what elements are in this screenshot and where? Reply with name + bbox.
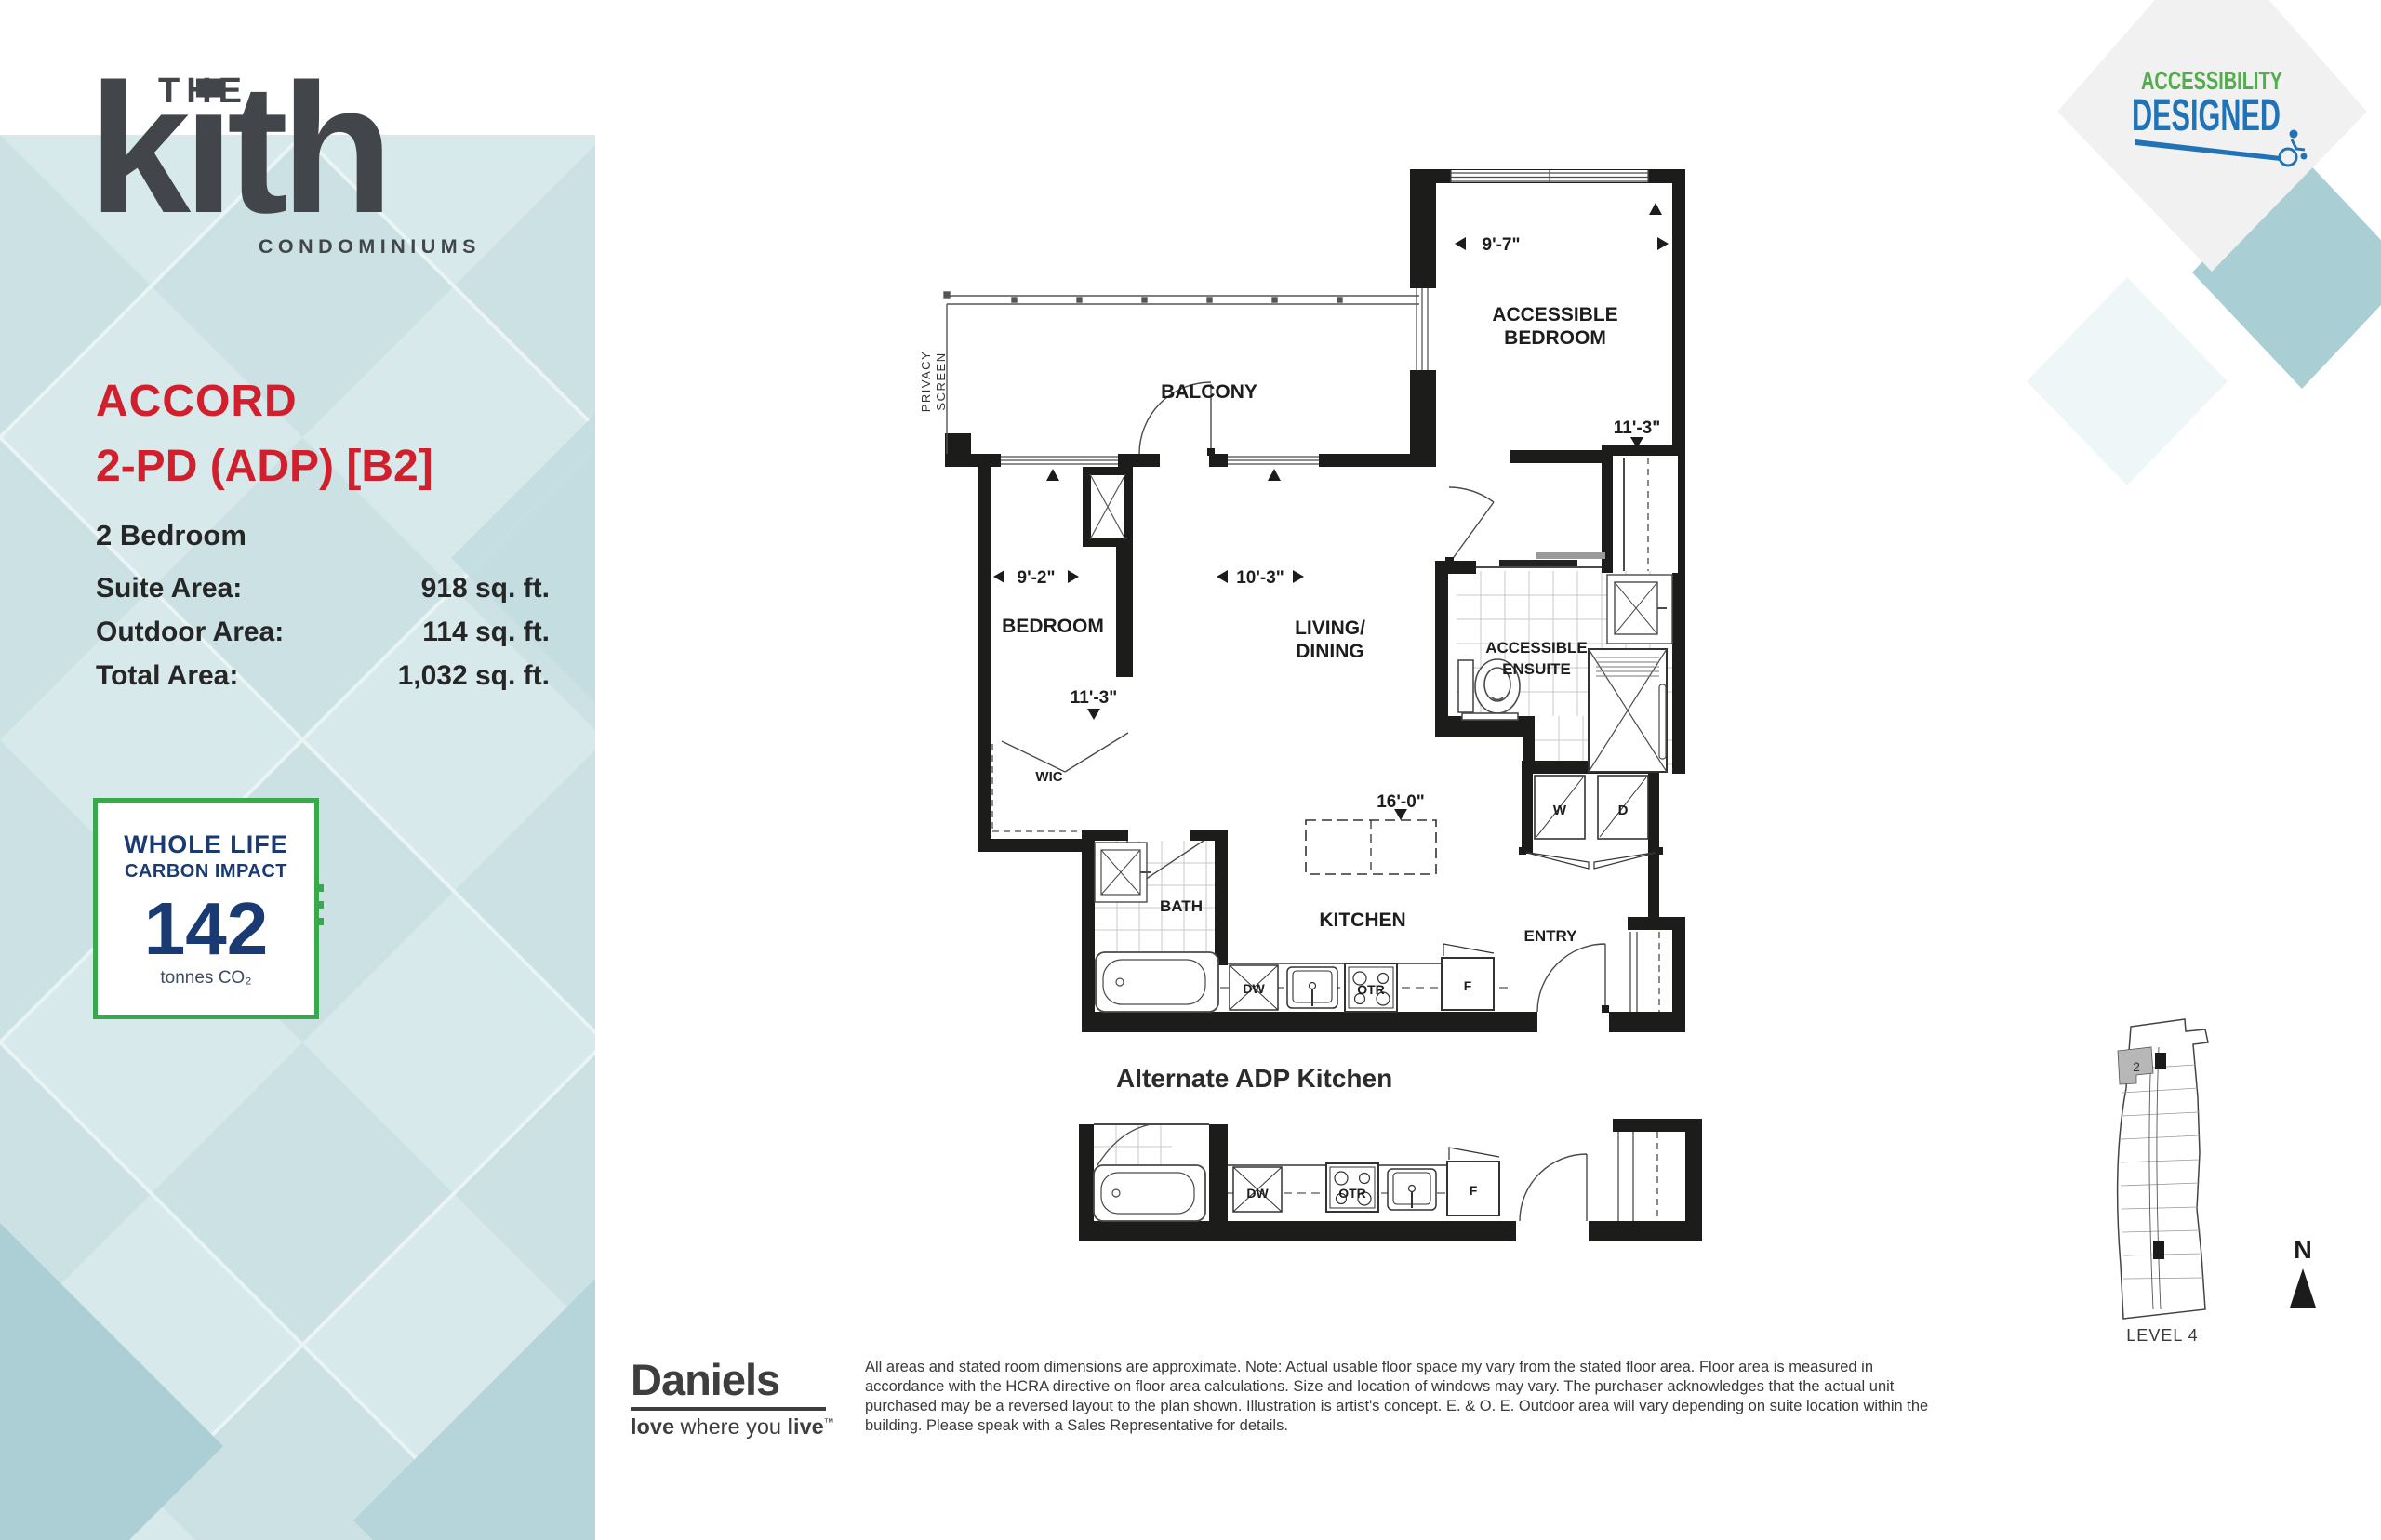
table-row: Total Area: 1,032 sq. ft. [96,660,550,692]
alternate-kitchen-title: Alternate ADP Kitchen [1116,1064,1392,1094]
dim-living-width: 10'-3" [1236,568,1284,588]
green-dash [314,884,324,892]
core [2155,1053,2166,1069]
disclaimer-text: All areas and stated room dimensions are… [865,1358,1939,1436]
walls [945,169,1685,1032]
privacy-screen-label-1: PRIVACY [919,351,933,413]
collection-title: ACCORD [96,376,298,427]
room-label-living-2: DINING [1296,641,1364,662]
dim-hall: 11'-3" [1071,688,1118,708]
dim-accbed-width: 9'-7" [1483,235,1521,255]
green-dash [314,918,324,925]
washer-dryer [1519,776,1663,869]
room-label-wic: WIC [1035,769,1062,785]
area-table: Suite Area: 918 sq. ft. Outdoor Area: 11… [96,573,550,704]
alternate-kitchen-plan: DW OTR F [1079,1111,1702,1251]
fixtures [1094,1124,1657,1221]
tagline-tm: ™ [824,1417,834,1428]
table-row: Outdoor Area: 114 sq. ft. [96,617,550,648]
privacy-screen [944,292,1419,454]
model-title: 2-PD (ADP) [B2] [96,441,433,492]
badge-line2: DESIGNED [2132,91,2281,140]
unit-type: 2 Bedroom [96,519,246,552]
area-label: Total Area: [96,660,238,692]
bath-fixtures [1095,843,1218,1012]
carbon-title-2: CARBON IMPACT [125,861,287,883]
windows [1001,170,1662,481]
dim-bedroom-width: 9'-2" [1018,568,1056,588]
daniels-rule [631,1407,826,1411]
brand-sub: CONDOMINIUMS [259,235,481,258]
area-value: 1,032 sq. ft. [398,660,550,692]
suite-number: 2 [2133,1059,2140,1074]
room-label-kitchen: KITCHEN [1319,909,1405,931]
room-label-accbed-1: ACCESSIBLE [1492,304,1617,325]
area-value: 918 sq. ft. [421,573,550,604]
tagline-love: love [631,1414,674,1439]
room-label-bedroom: BEDROOM [1002,616,1104,637]
table-row: Suite Area: 918 sq. ft. [96,573,550,604]
appliance-label-otr: OTR [1338,1186,1366,1201]
key-plan: 2 LEVEL 4 [2097,1014,2255,1348]
room-label-entry: ENTRY [1524,927,1578,945]
north-compass: N [2277,1233,2329,1311]
appliance-label-dw: DW [1246,1186,1269,1201]
tagline-live: live [788,1414,824,1439]
carbon-title-1: WHOLE LIFE [124,830,287,859]
appliance-label-otr: OTR [1357,982,1385,997]
daniels-wordmark: Daniels [631,1354,828,1405]
accessibility-badge: ACCESSIBILITY DESIGNED [1953,0,2381,521]
brand-the: THE [158,72,248,111]
area-label: Suite Area: [96,573,242,604]
flyer-page: ACCESSIBILITY DESIGNED kith THE CONDOMIN… [0,0,2381,1540]
appliance-label-dryer: D [1618,803,1629,818]
north-label: N [2294,1236,2312,1264]
appliance-label-fridge: F [1464,978,1472,993]
floor-plan: BALCONY ACCESSIBLE BEDROOM BEDROOM LIVIN… [893,158,1702,1042]
ensuite-vanity [1607,575,1672,644]
sliding-door [1476,552,1605,567]
tagline-mid: where you [674,1414,787,1439]
carbon-units: tonnes CO₂ [160,968,251,989]
green-dash [314,901,324,909]
roll-in-shower [1589,649,1667,772]
appliance-label-fridge: F [1470,1183,1478,1198]
appliance-label-dw: DW [1243,981,1265,996]
dim-kitchen: 16'-0" [1377,792,1425,812]
brand-logo: kith THE CONDOMINIUMS [74,37,512,270]
room-label-ensuite-2: ENSUITE [1502,660,1571,678]
daniels-logo: Daniels love where you live™ [631,1354,828,1440]
dim-accbed-depth: 11'-3" [1614,418,1661,438]
carbon-impact-card: WHOLE LIFE CARBON IMPACT 142 tonnes CO₂ [93,798,319,1019]
daniels-tagline: love where you live™ [631,1414,828,1440]
area-value: 114 sq. ft. [422,617,550,648]
core [2153,1241,2164,1259]
level-label: LEVEL 4 [2126,1326,2198,1345]
room-label-ensuite-1: ACCESSIBLE [1485,639,1588,657]
privacy-screen-label-2: SCREEN [934,352,948,410]
room-label-living-1: LIVING/ [1295,617,1365,639]
carbon-value: 142 [144,892,268,966]
room-label-balcony: BALCONY [1161,381,1257,403]
north-arrow-icon [2290,1268,2316,1308]
shaft-column [1090,474,1125,539]
room-label-bath: BATH [1160,897,1203,915]
room-label-accbed-2: BEDROOM [1504,327,1606,349]
appliance-label-washer: W [1553,803,1567,818]
area-label: Outdoor Area: [96,617,284,648]
